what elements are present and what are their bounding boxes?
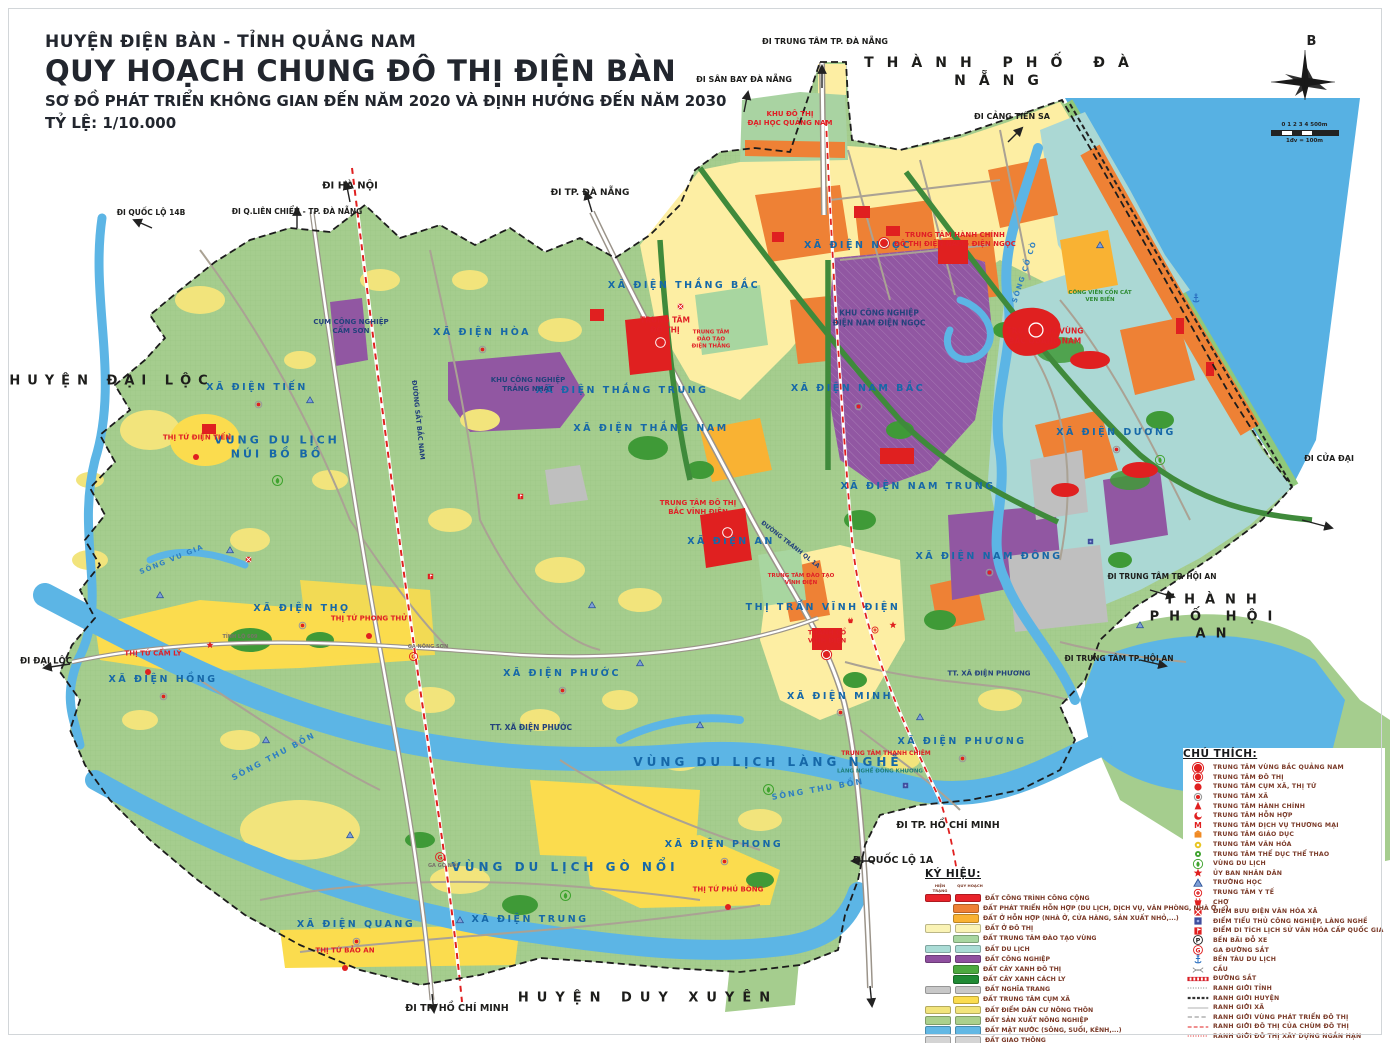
landuse-label: ĐẤT GIAO THÔNG [985,1037,1046,1043]
scale-ticks: 0 1 2 3 4 [1282,122,1309,128]
legend-ky-hieu: KÝ HIỆU: HIỆN TRẠNG QUY HOẠCH ĐẤT CÔNG T… [925,868,1183,1043]
legend-item: RANH GIỚI XÃ [1183,1003,1385,1013]
legend-item-label: ĐIỂM TIỂU THỦ CÔNG NGHIỆP, LÀNG NGHỀ [1213,918,1368,925]
swatch-existing [925,997,949,1004]
landuse-label: ĐẤT Ở ĐÔ THỊ [985,925,1033,932]
legend-item: TRUNG TÂM VĂN HÓA [1183,840,1385,850]
scale-bar: 0 1 2 3 4 500m 1đv = 100m [1252,121,1357,145]
landuse-legend-item: ĐẤT NGHĨA TRANG [925,985,1183,995]
swatch-planned [953,996,979,1005]
legend-item: VÙNG DU LỊCH [1183,859,1385,869]
landuse-label: ĐẤT NGHĨA TRANG [985,986,1050,993]
legend-item-label: TRUNG TÂM THỂ DỤC THỂ THAO [1213,851,1329,858]
legend-item-label: TRUNG TÂM Y TẾ [1213,889,1274,896]
legend-item: TRUNG TÂM GIÁO DỤC [1183,830,1385,840]
legend-item-label: BẾN TÀU DU LỊCH [1213,956,1276,963]
ky-hieu-items: ĐẤT CÔNG TRÌNH CÔNG CỘNGĐẤT PHÁT TRIỂN H… [925,893,1183,1043]
legend-item-label: RANH GIỚI TỈNH [1213,985,1272,992]
legend-item: RANH GIỚI VÙNG PHÁT TRIỂN ĐÔ THỊ [1183,1012,1385,1022]
swatch-planned [953,914,979,923]
landuse-legend-item: ĐẤT TRUNG TÂM ĐÀO TẠO VÙNG [925,934,1183,944]
landuse-label: ĐẤT ĐIỂM DÂN CƯ NÔNG THÔN [985,1007,1093,1014]
legend-item: P BẾN BÃI ĐỖ XE [1183,936,1385,946]
legend-item: TRUNG TÂM HỖN HỢP [1183,811,1385,821]
legend-item: ĐƯỜNG SẮT [1183,974,1385,984]
planning-map-page: HUYỆN ĐIỆN BÀN - TỈNH QUẢNG NAM QUY HOẠC… [0,0,1390,1043]
landuse-legend-item: ĐẤT SẢN XUẤT NÔNG NGHIỆP [925,1015,1183,1025]
legend-item-label: TRUNG TÂM ĐÔ THỊ [1213,774,1284,781]
title-block: HUYỆN ĐIỆN BÀN - TỈNH QUẢNG NAM QUY HOẠC… [45,32,727,132]
legend-item: ỦY BAN NHÂN DÂN [1183,869,1385,879]
legend-item-label: VÙNG DU LỊCH [1213,860,1266,867]
legend-item-label: ỦY BAN NHÂN DÂN [1213,870,1282,877]
legend-item: ĐIỂM DI TÍCH LỊCH SỬ VĂN HÓA CẤP QUỐC GI… [1183,926,1385,936]
legend-item-label: TRUNG TÂM VÙNG BẮC QUẢNG NAM [1213,764,1344,771]
landuse-label: ĐẤT PHÁT TRIỂN HỖN HỢP (DU LỊCH, DỊCH VỤ… [983,905,1228,912]
swatch-planned [955,1036,981,1043]
swatch-planned [955,955,981,964]
legend-item: RANH GIỚI TỈNH [1183,984,1385,994]
landuse-label: ĐẤT CÂY XANH ĐÔ THỊ [983,966,1061,973]
swatch-planned [955,986,981,995]
legend-item-label: TRUNG TÂM DỊCH VỤ THƯƠNG MẠI [1213,822,1339,829]
landuse-legend-item: ĐẤT CÔNG NGHIỆP [925,954,1183,964]
legend-item: RANH GIỚI ĐÔ THỊ CỦA CHÙM ĐÔ THỊ [1183,1022,1385,1032]
legend-item-label: TRƯỜNG HỌC [1213,879,1262,886]
col-planned-label: QUY HOẠCH [957,883,983,893]
legend-item-label: ĐIỂM DI TÍCH LỊCH SỬ VĂN HÓA CẤP QUỐC GI… [1213,927,1384,934]
legend-item: TRUNG TÂM VÙNG BẮC QUẢNG NAM [1183,763,1385,773]
legend-item-label: RANH GIỚI VÙNG PHÁT TRIỂN ĐÔ THỊ [1213,1014,1348,1021]
landuse-label: ĐẤT CÔNG TRÌNH CÔNG CỘNG [985,895,1090,902]
legend-item: RANH GIỚI HUYỆN [1183,993,1385,1003]
swatch-existing [925,936,949,943]
swatch-planned [955,1006,981,1015]
landuse-label: ĐẤT DU LỊCH [985,946,1030,953]
legend-item: TRUNG TÂM HÀNH CHÍNH [1183,801,1385,811]
swatch-existing [925,1006,951,1015]
landuse-legend-item: ĐẤT DU LỊCH [925,944,1183,954]
swatch-existing [925,924,951,933]
swatch-planned [953,965,979,974]
swatch-existing [925,894,951,903]
north-label: B [1266,34,1357,49]
landuse-legend-item: ĐẤT TRUNG TÂM CỤM XÃ [925,995,1183,1005]
legend-item: TRUNG TÂM CỤM XÃ, THỊ TỨ [1183,782,1385,792]
landuse-label: ĐẤT Ở HỖN HỢP (NHÀ Ở, CỬA HÀNG, SẢN XUẤT… [983,915,1179,922]
compass-star-icon [1257,49,1353,115]
legend-item: TRUNG TÂM Y TẾ [1183,888,1385,898]
map-scale-text: TỶ LỆ: 1/10.000 [45,114,727,132]
swatch-existing [925,905,949,912]
legend-item-label: TRUNG TÂM XÃ [1213,793,1268,800]
legend-item: TRUNG TÂM THỂ DỤC THỂ THAO [1183,849,1385,859]
swatch-existing [925,1036,951,1043]
landuse-legend-item: ĐẤT Ở HỖN HỢP (NHÀ Ở, CỬA HÀNG, SẢN XUẤT… [925,913,1183,923]
legend-item-label: GA ĐƯỜNG SẮT [1213,947,1269,954]
map-title: QUY HOẠCH CHUNG ĐÔ THỊ ĐIỆN BÀN [45,54,727,88]
legend-item-label: RANH GIỚI XÃ [1213,1004,1264,1011]
ky-hieu-column-headers: HIỆN TRẠNG QUY HOẠCH [927,883,1183,893]
map-subtitle-region: HUYỆN ĐIỆN BÀN - TỈNH QUẢNG NAM [45,32,727,52]
landuse-label: ĐẤT SẢN XUẤT NÔNG NGHIỆP [985,1017,1088,1024]
landuse-legend-item: ĐẤT Ở ĐÔ THỊ [925,924,1183,934]
compass-rose: B 0 1 2 3 4 500m 1đv = 100m [1252,34,1357,145]
landuse-legend-item: ĐẤT CÂY XANH ĐÔ THỊ [925,964,1183,974]
swatch-existing [925,986,951,995]
legend-item: G GA ĐƯỜNG SẮT [1183,945,1385,955]
swatch-existing [925,945,951,954]
swatch-planned [955,1016,981,1025]
legend-item: ĐIỂM TIỂU THỦ CÔNG NGHIỆP, LÀNG NGHỀ [1183,917,1385,927]
legend-item-label: RANH GIỚI ĐÔ THỊ XÂY DỰNG NGẮN HẠN [1213,1033,1361,1040]
legend-item: CẦU [1183,964,1385,974]
legend-item-label: ĐIỂM BƯU ĐIỆN VĂN HÓA XÃ [1213,908,1318,915]
map-subtitle-scheme: SƠ ĐỒ PHÁT TRIỂN KHÔNG GIAN ĐẾN NĂM 2020… [45,92,727,110]
landuse-label: ĐẤT TRUNG TÂM ĐÀO TẠO VÙNG [983,935,1097,942]
swatch-planned [955,894,981,903]
swatch-existing [925,915,949,922]
legend-ky-hieu-title: KÝ HIỆU: [925,868,1183,880]
legend-item-label: TRUNG TÂM HỖN HỢP [1213,812,1293,819]
landuse-label: ĐẤT CÂY XANH CÁCH LY [983,976,1065,983]
legend-item-label: TRUNG TÂM HÀNH CHÍNH [1213,803,1305,810]
legend-item: TRUNG TÂM ĐÔ THỊ [1183,773,1385,783]
swatch-existing [925,955,951,964]
landuse-label: ĐẤT MẶT NƯỚC (SÔNG, SUỐI, KÊNH,...) [985,1027,1122,1034]
legend-item: M TRUNG TÂM DỊCH VỤ THƯƠNG MẠI [1183,821,1385,831]
swatch-planned [953,975,979,984]
swatch-planned [953,935,979,944]
legend-item-label: TRUNG TÂM VĂN HÓA [1213,841,1292,848]
legend-item-label: RANH GIỚI HUYỆN [1213,995,1279,1002]
chu-thich-items: TRUNG TÂM VÙNG BẮC QUẢNG NAM TRUNG TÂM Đ… [1183,763,1385,1041]
legend-item: BẾN TÀU DU LỊCH [1183,955,1385,965]
swatch-planned [955,945,981,954]
legend-symbol [1183,1030,1213,1042]
swatch-planned [953,904,979,913]
legend-item-label: TRUNG TÂM GIÁO DỤC [1213,831,1294,838]
landuse-legend-item: ĐẤT CÂY XANH CÁCH LY [925,975,1183,985]
landuse-legend-item: ĐẤT ĐIỂM DÂN CƯ NÔNG THÔN [925,1005,1183,1015]
shortterm-urban-boundary-line [1185,1030,1211,1042]
landuse-legend-item: ĐẤT MẶT NƯỚC (SÔNG, SUỐI, KÊNH,...) [925,1025,1183,1035]
legend-item: RANH GIỚI ĐÔ THỊ XÂY DỰNG NGẮN HẠN [1183,1032,1385,1042]
legend-item-label: CẦU [1213,966,1228,973]
swatch-existing [925,1026,951,1035]
scale-end: 500m [1310,122,1327,128]
landuse-label: ĐẤT CÔNG NGHIỆP [985,956,1050,963]
col-existing-label: HIỆN TRẠNG [927,883,953,893]
swatch-existing [925,966,949,973]
legend-item-label: RANH GIỚI ĐÔ THỊ CỦA CHÙM ĐÔ THỊ [1213,1023,1349,1030]
swatch-planned [955,924,981,933]
swatch-existing [925,976,949,983]
landuse-legend-item: ĐẤT GIAO THÔNG [925,1036,1183,1043]
legend-item-label: BẾN BÃI ĐỖ XE [1213,937,1267,944]
landuse-label: ĐẤT TRUNG TÂM CỤM XÃ [983,996,1070,1003]
landuse-legend-item: ĐẤT PHÁT TRIỂN HỖN HỢP (DU LỊCH, DỊCH VỤ… [925,903,1183,913]
swatch-planned [955,1026,981,1035]
legend-item: TRƯỜNG HỌC [1183,878,1385,888]
legend-chu-thich: CHÚ THÍCH: TRUNG TÂM VÙNG BẮC QUẢNG NAM … [1183,748,1385,1041]
legend-item: TRUNG TÂM XÃ [1183,792,1385,802]
legend-item-label: TRUNG TÂM CỤM XÃ, THỊ TỨ [1213,783,1316,790]
legend-item-label: ĐƯỜNG SẮT [1213,975,1256,982]
landuse-legend-item: ĐẤT CÔNG TRÌNH CÔNG CỘNG [925,893,1183,903]
scale-bar-graphic [1271,130,1339,136]
swatch-existing [925,1016,951,1025]
legend-chu-thich-title: CHÚ THÍCH: [1183,748,1385,760]
scale-note: 1đv = 100m [1252,137,1357,145]
